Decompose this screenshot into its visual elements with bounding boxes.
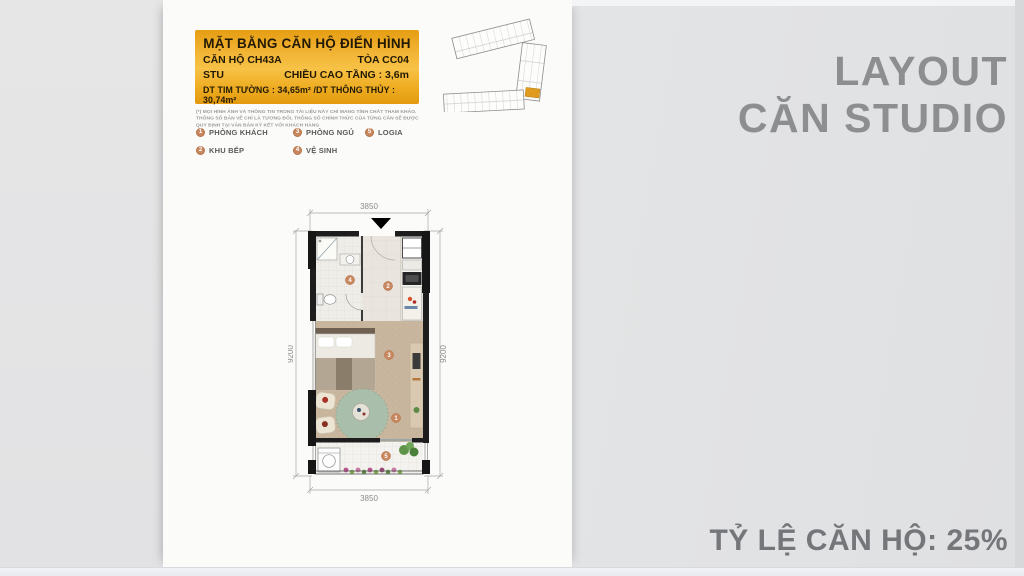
- dim-bottom-label: 3850: [360, 494, 378, 503]
- page-bottom-edge: [0, 567, 1024, 576]
- floor-plan: 3850 3850 9200 9200: [288, 198, 448, 513]
- marker-bedroom: 3: [384, 350, 393, 359]
- disclaimer-text: (*) MỌI HÌNH ẢNH VÀ THÔNG TIN TRONG TÀI …: [196, 108, 422, 128]
- key-plan-bottom-wing: [443, 90, 524, 112]
- slide-title: LAYOUT CĂN STUDIO: [738, 48, 1008, 142]
- legend-item-living: 1 PHÒNG KHÁCH: [196, 127, 268, 137]
- unit-type: STU: [203, 69, 224, 81]
- legend-num-icon: 3: [293, 128, 302, 137]
- unit-ratio-label: TỶ LỆ CĂN HỘ: 25%: [709, 524, 1008, 558]
- marker-bathroom: 4: [345, 275, 354, 284]
- legend-item-bedroom: 3 PHÒNG NGỦ: [293, 127, 354, 137]
- dim-right-label: 9200: [439, 345, 448, 363]
- entrance-arrow-icon: [371, 218, 391, 229]
- marker-kitchen: 2: [383, 281, 392, 290]
- rug-and-coffee-table: [336, 389, 388, 441]
- apartment-info-box: MẶT BẰNG CĂN HỘ ĐIỂN HÌNH CĂN HỘ CH43A T…: [195, 30, 419, 104]
- page-top-edge: [572, 0, 1024, 6]
- legend-num-icon: 1: [196, 128, 205, 137]
- legend-num-icon: 4: [293, 146, 302, 155]
- marker-living: 1: [391, 413, 400, 422]
- unit-code: CĂN HỘ CH43A: [203, 54, 282, 66]
- dim-top-label: 3850: [360, 202, 378, 211]
- legend-item-kitchen: 2 KHU BẾP: [196, 145, 244, 155]
- legend-item-logia: 5 LOGIA: [365, 127, 403, 137]
- slide-title-line1: LAYOUT: [738, 48, 1008, 95]
- page-right-edge: [1015, 0, 1024, 576]
- bed: [315, 328, 375, 399]
- tv-console: [410, 343, 423, 428]
- kitchen: [401, 236, 423, 321]
- marker-logia: 5: [381, 451, 390, 460]
- left-gray-band: [0, 0, 163, 568]
- info-box-title: MẶT BẰNG CĂN HỘ ĐIỂN HÌNH: [203, 36, 411, 51]
- area-info: DT TIM TƯỜNG : 34,65m² /DT THÔNG THỦY : …: [203, 85, 411, 105]
- legend-item-bathroom: 4 VỆ SINH: [293, 145, 337, 155]
- brochure-slide: MẶT BẰNG CĂN HỘ ĐIỂN HÌNH CĂN HỘ CH43A T…: [0, 0, 1024, 576]
- slide-title-line2: CĂN STUDIO: [738, 95, 1008, 142]
- dim-left-label: 9200: [288, 345, 295, 363]
- floor-height: CHIỀU CAO TẦNG : 3,6m: [284, 69, 411, 81]
- legend-num-icon: 5: [365, 128, 374, 137]
- tower-code: TÒA CC04: [357, 54, 411, 66]
- legend-num-icon: 2: [196, 146, 205, 155]
- highlighted-unit: [525, 87, 540, 98]
- building-key-plan: [440, 12, 565, 112]
